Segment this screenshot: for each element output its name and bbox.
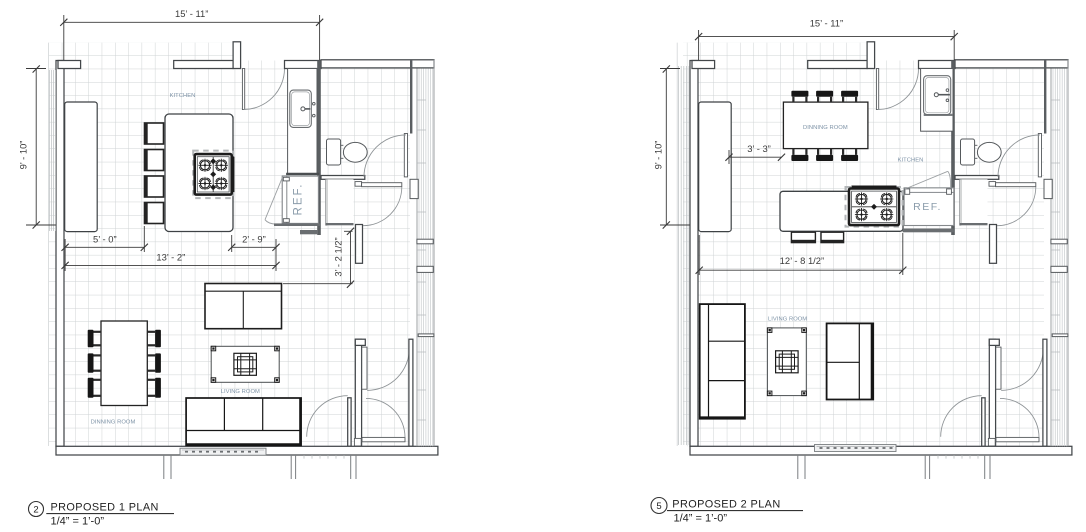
svg-text:2’ - 9”: 2’ - 9” — [242, 233, 266, 244]
svg-text:REF.: REF. — [293, 183, 305, 216]
svg-text:LIVING ROOM: LIVING ROOM — [768, 316, 807, 322]
svg-text:5’ - 0”: 5’ - 0” — [93, 233, 117, 244]
svg-text:12’ - 8 1/2”: 12’ - 8 1/2” — [780, 255, 824, 266]
svg-text:PROPOSED 1 PLAN: PROPOSED 1 PLAN — [51, 502, 159, 514]
svg-text:LIVING ROOM: LIVING ROOM — [221, 389, 260, 395]
svg-text:PROPOSED 2 PLAN: PROPOSED 2 PLAN — [672, 499, 780, 511]
svg-text:1/4” = 1’-0”: 1/4” = 1’-0” — [51, 516, 105, 528]
svg-text:KITCHEN: KITCHEN — [170, 93, 196, 99]
svg-text:1/4” = 1’-0”: 1/4” = 1’-0” — [674, 513, 728, 525]
svg-text:5: 5 — [656, 501, 661, 512]
svg-text:DINNING ROOM: DINNING ROOM — [803, 125, 848, 131]
svg-text:REF.: REF. — [913, 201, 942, 213]
svg-text:13’ - 2”: 13’ - 2” — [156, 251, 185, 262]
svg-text:3’ - 2 1/2”: 3’ - 2 1/2” — [333, 237, 344, 276]
svg-text:2: 2 — [33, 504, 38, 515]
svg-text:9’ - 10”: 9’ - 10” — [18, 141, 29, 170]
svg-text:15’ - 11”: 15’ - 11” — [175, 8, 208, 19]
svg-text:DINNING ROOM: DINNING ROOM — [91, 420, 136, 426]
svg-text:15’ - 11”: 15’ - 11” — [810, 18, 843, 29]
svg-text:KITCHEN: KITCHEN — [898, 158, 924, 164]
svg-text:9’ - 10”: 9’ - 10” — [653, 141, 664, 170]
svg-text:3’ - 3”: 3’ - 3” — [747, 143, 771, 154]
